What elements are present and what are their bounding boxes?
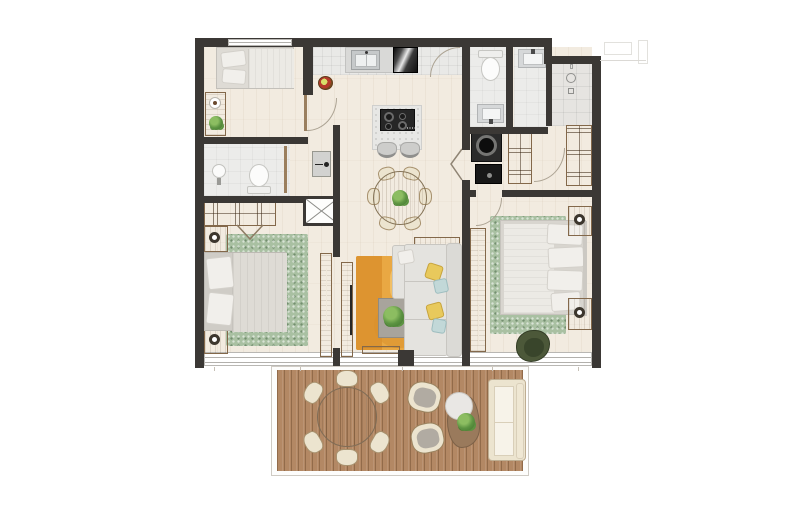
wall-right (592, 56, 601, 368)
toilet-bowl (481, 57, 500, 81)
appliance-dial (487, 173, 492, 178)
dimension-tick (214, 367, 215, 371)
pedestal-sink (212, 164, 226, 178)
decorative-plate (209, 97, 221, 109)
chair-seat (524, 338, 544, 357)
fridge (393, 47, 418, 73)
water-heater (312, 151, 331, 177)
table-centerpiece-plant (392, 190, 408, 206)
wall-service-left (462, 38, 470, 150)
shower-room-vanity (518, 49, 546, 68)
bedroom2-sliding-wardrobe (470, 228, 486, 352)
heater-knob (324, 162, 329, 167)
burner (398, 121, 407, 130)
vanity-basin (482, 108, 502, 120)
wall-service-bottom (470, 127, 548, 134)
pillow (205, 292, 234, 327)
sink-tap (217, 178, 221, 185)
duvet (232, 253, 287, 332)
adjacent-unit-sketch (638, 40, 648, 64)
sofa-back (516, 383, 524, 459)
wall-bedroom2-top (502, 190, 592, 197)
throw-pillow-white (397, 249, 415, 266)
bathroom2-vanity (477, 104, 504, 123)
kitchen-sink (351, 50, 380, 70)
door-viewer-icon (568, 88, 574, 94)
dimension-tick (578, 367, 579, 371)
terrace-plant (457, 413, 475, 431)
cooktop (380, 109, 415, 131)
bathroom-door-leaf (284, 146, 287, 193)
bar-stool (377, 142, 397, 158)
cooktop-knobs (407, 127, 415, 129)
burner (385, 123, 392, 130)
faucet-icon (365, 51, 368, 54)
sink-divider (366, 54, 367, 67)
throw-pillow-blue (433, 278, 450, 295)
sliding-door-panel (320, 253, 332, 357)
wall-left (195, 38, 204, 368)
coffee-table-plant (383, 306, 404, 327)
washer-door-ring (476, 135, 497, 156)
wall-bath2-divider (506, 47, 513, 127)
closet-divider (579, 126, 580, 185)
small-appliance (475, 164, 502, 184)
main-bedroom-wardrobe (204, 200, 276, 226)
table-lamp (574, 307, 585, 318)
duvet (248, 49, 294, 88)
sofa-backrest (446, 243, 462, 357)
desk-plant (209, 116, 223, 130)
pillow (205, 256, 234, 291)
toilet-bowl (249, 164, 269, 187)
adjacent-unit-sketch (604, 42, 632, 55)
wall-light-icon (236, 224, 264, 241)
fruit-bowl (318, 76, 333, 90)
hall-closet (508, 129, 532, 184)
dimension-tick (300, 367, 301, 371)
tv-console (341, 262, 353, 357)
bar-stool (400, 142, 420, 158)
north-window (228, 39, 292, 46)
sliding-glass-frame (362, 346, 400, 354)
heater-handle (315, 164, 323, 165)
small-bedroom-bed (216, 47, 294, 89)
dimension-tick (492, 367, 493, 371)
faucet-icon (531, 49, 535, 54)
burner (399, 113, 406, 120)
main-bedroom-bed (204, 252, 286, 331)
wall-bedroom-small-right (303, 47, 313, 95)
wall-bedroom2-top-stub (462, 190, 476, 197)
pillow (547, 269, 584, 291)
window-mullion (229, 42, 291, 43)
closet-divider (205, 213, 275, 214)
tv-screen (350, 285, 352, 335)
ceiling-light-icon (566, 73, 576, 83)
burner (384, 112, 394, 122)
table-lamp (209, 232, 220, 243)
vanity-basin (523, 53, 543, 65)
terrace-chair (336, 449, 358, 466)
wardrobe-handle (478, 249, 479, 295)
armchair-cushion (415, 427, 440, 450)
panel-handle (326, 268, 327, 328)
terrace-table (317, 387, 377, 447)
plate-center (213, 101, 217, 105)
closet-divider (520, 130, 521, 183)
entry-closet (566, 125, 592, 186)
wall-shower-entry-divider (546, 47, 552, 126)
pillow (547, 246, 584, 269)
dimension-tick (402, 367, 403, 371)
table-lamp (209, 334, 220, 345)
wall-corridor (333, 125, 340, 257)
pillow (221, 68, 246, 85)
toilet-tank (247, 186, 271, 194)
table-lamp (574, 214, 585, 225)
bifold-door-icon (450, 148, 463, 181)
wall-corridor-low (333, 348, 340, 366)
wall-bathroom-top (204, 137, 308, 144)
wardrobe-handle (478, 303, 479, 345)
terrace-chair (336, 370, 358, 387)
switch-icon (570, 64, 573, 69)
wall-bathroom-bottom (204, 196, 304, 203)
faucet-icon (489, 119, 493, 124)
pillow (220, 50, 247, 69)
sofa-cushions (494, 386, 514, 456)
throw-pillow-blue (431, 318, 447, 334)
floor-plan-canvas (0, 0, 800, 518)
wall-living-bedroom2 (462, 180, 470, 366)
outdoor-sofa (488, 379, 526, 461)
armchair-cushion (412, 386, 438, 410)
